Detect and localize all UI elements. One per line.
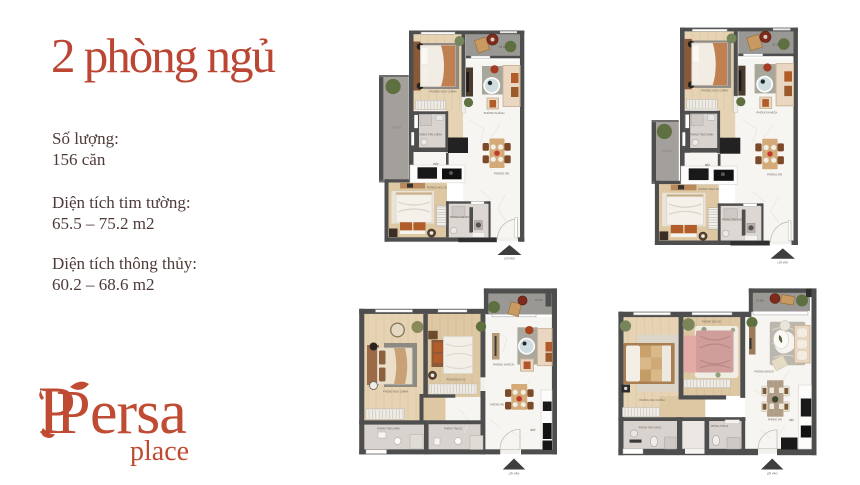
svg-text:CĂN HỘ: CĂN HỘ [391, 127, 401, 130]
svg-text:PHÒNG NGỦ CHÍNH: PHÒNG NGỦ CHÍNH [430, 89, 457, 94]
svg-text:LỐI VÀO: LỐI VÀO [509, 471, 520, 476]
svg-text:LÔ GIA: LÔ GIA [772, 44, 780, 47]
svg-text:PHÒNG KHÁCH: PHÒNG KHÁCH [756, 110, 777, 115]
svg-text:PHÒNG KHÁCH: PHÒNG KHÁCH [484, 110, 505, 115]
svg-text:BẾP: BẾP [789, 419, 794, 422]
svg-text:PHÒNG NGỦ 02: PHÒNG NGỦ 02 [702, 320, 722, 323]
svg-text:PHÒNG TẮM CHÍNH: PHÒNG TẮM CHÍNH [377, 427, 400, 430]
svg-text:LỐI VÀO: LỐI VÀO [767, 471, 778, 476]
svg-text:PHÒNG ĂN: PHÒNG ĂN [767, 172, 782, 177]
svg-text:PHÒNG ĂN: PHÒNG ĂN [494, 170, 509, 175]
svg-text:PHÒNG TẮM CHÍNH: PHÒNG TẮM CHÍNH [690, 134, 714, 137]
svg-text:PHÒNG NGỦ CHÍNH: PHÒNG NGỦ CHÍNH [701, 87, 728, 92]
svg-text:LÔ GIA: LÔ GIA [756, 300, 764, 303]
svg-text:PHÒNG KHÁCH: PHÒNG KHÁCH [493, 362, 514, 367]
svg-text:LÔ GIA: LÔ GIA [499, 46, 507, 49]
svg-text:PHÒNG TẮM CHÍNH: PHÒNG TẮM CHÍNH [418, 134, 442, 137]
svg-text:BẾP: BẾP [530, 429, 535, 432]
svg-text:PHÒNG TẮM NHỎ: PHÒNG TẮM NHỎ [450, 216, 471, 219]
svg-text:PHÒNG TẮM KHÁCH: PHÒNG TẮM KHÁCH [639, 427, 662, 430]
svg-text:PHÒNG TẮM NHỎ: PHÒNG TẮM NHỎ [722, 219, 743, 222]
svg-text:LÔ GIA: LÔ GIA [535, 299, 543, 302]
svg-text:PHÒNG TẮM 02: PHÒNG TẮM 02 [444, 427, 462, 430]
svg-text:PHÒNG TẮM 02: PHÒNG TẮM 02 [711, 425, 729, 428]
svg-text:CĂN HỘ: CĂN HỘ [663, 150, 673, 153]
svg-text:LỐI VÀO: LỐI VÀO [504, 256, 515, 261]
svg-text:LỐI VÀO: LỐI VÀO [777, 259, 788, 264]
svg-text:PHÒNG NGỦ 02: PHÒNG NGỦ 02 [447, 379, 467, 382]
